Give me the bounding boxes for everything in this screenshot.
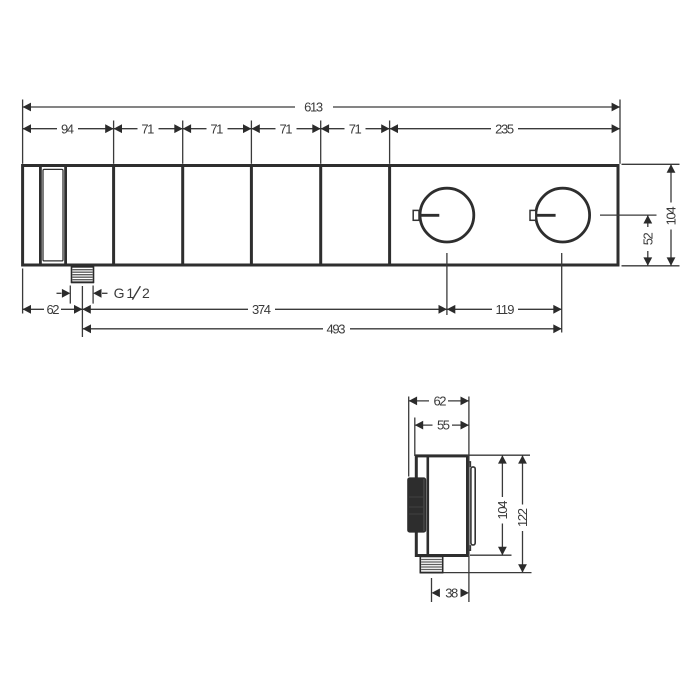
svg-text:374: 374 xyxy=(252,302,271,317)
svg-text:71: 71 xyxy=(349,121,362,136)
svg-text:235: 235 xyxy=(495,121,514,136)
svg-text:55: 55 xyxy=(437,418,450,433)
svg-text:119: 119 xyxy=(496,302,515,317)
svg-text:62: 62 xyxy=(47,302,60,317)
svg-text:104: 104 xyxy=(495,501,510,520)
svg-text:G: G xyxy=(114,285,125,301)
svg-text:104: 104 xyxy=(664,206,679,225)
svg-text:38: 38 xyxy=(445,586,458,601)
svg-text:71: 71 xyxy=(280,121,293,136)
svg-text:613: 613 xyxy=(304,100,323,115)
svg-text:2: 2 xyxy=(142,285,150,301)
svg-text:71: 71 xyxy=(141,121,154,136)
svg-text:71: 71 xyxy=(210,121,223,136)
svg-text:493: 493 xyxy=(327,321,346,336)
svg-text:62: 62 xyxy=(434,394,447,409)
svg-text:52: 52 xyxy=(640,232,655,245)
svg-text:122: 122 xyxy=(515,508,530,527)
svg-text:94: 94 xyxy=(61,121,74,136)
